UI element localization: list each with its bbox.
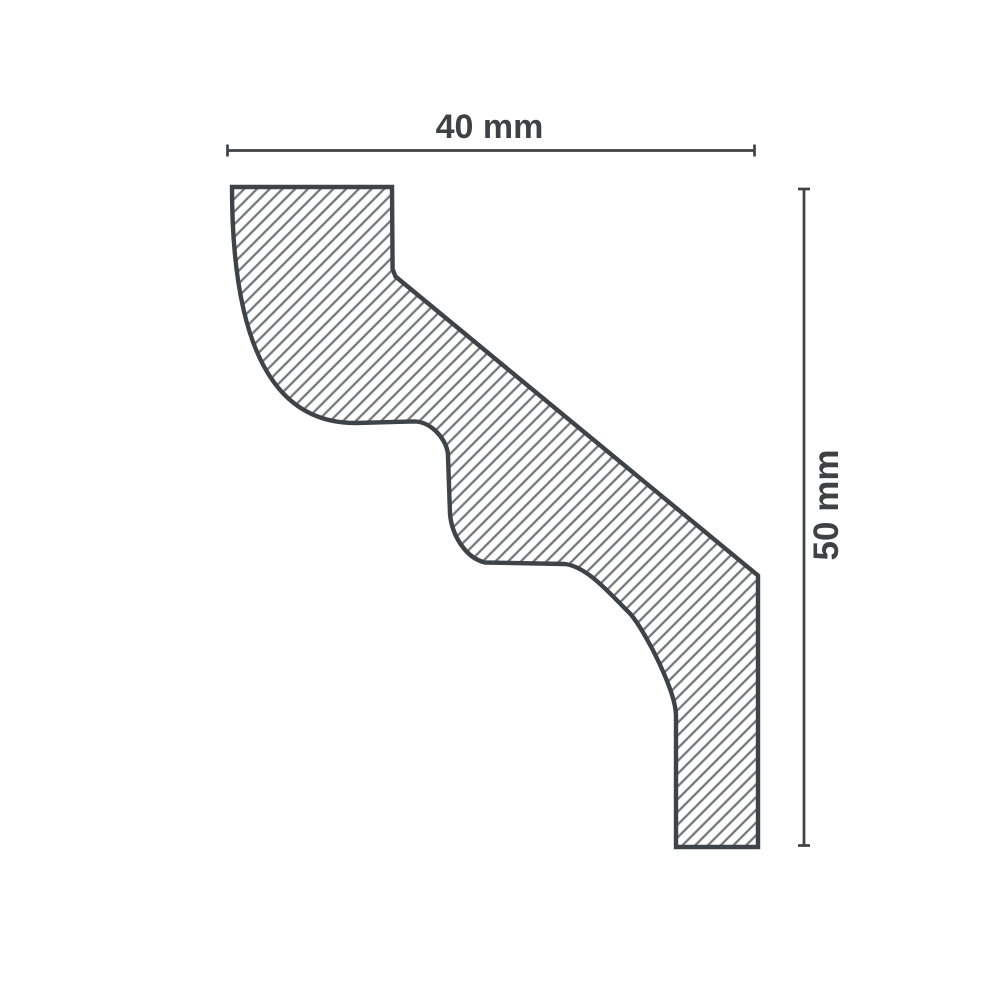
svg-text:50 mm: 50 mm xyxy=(807,450,846,561)
svg-text:40 mm: 40 mm xyxy=(436,108,544,146)
